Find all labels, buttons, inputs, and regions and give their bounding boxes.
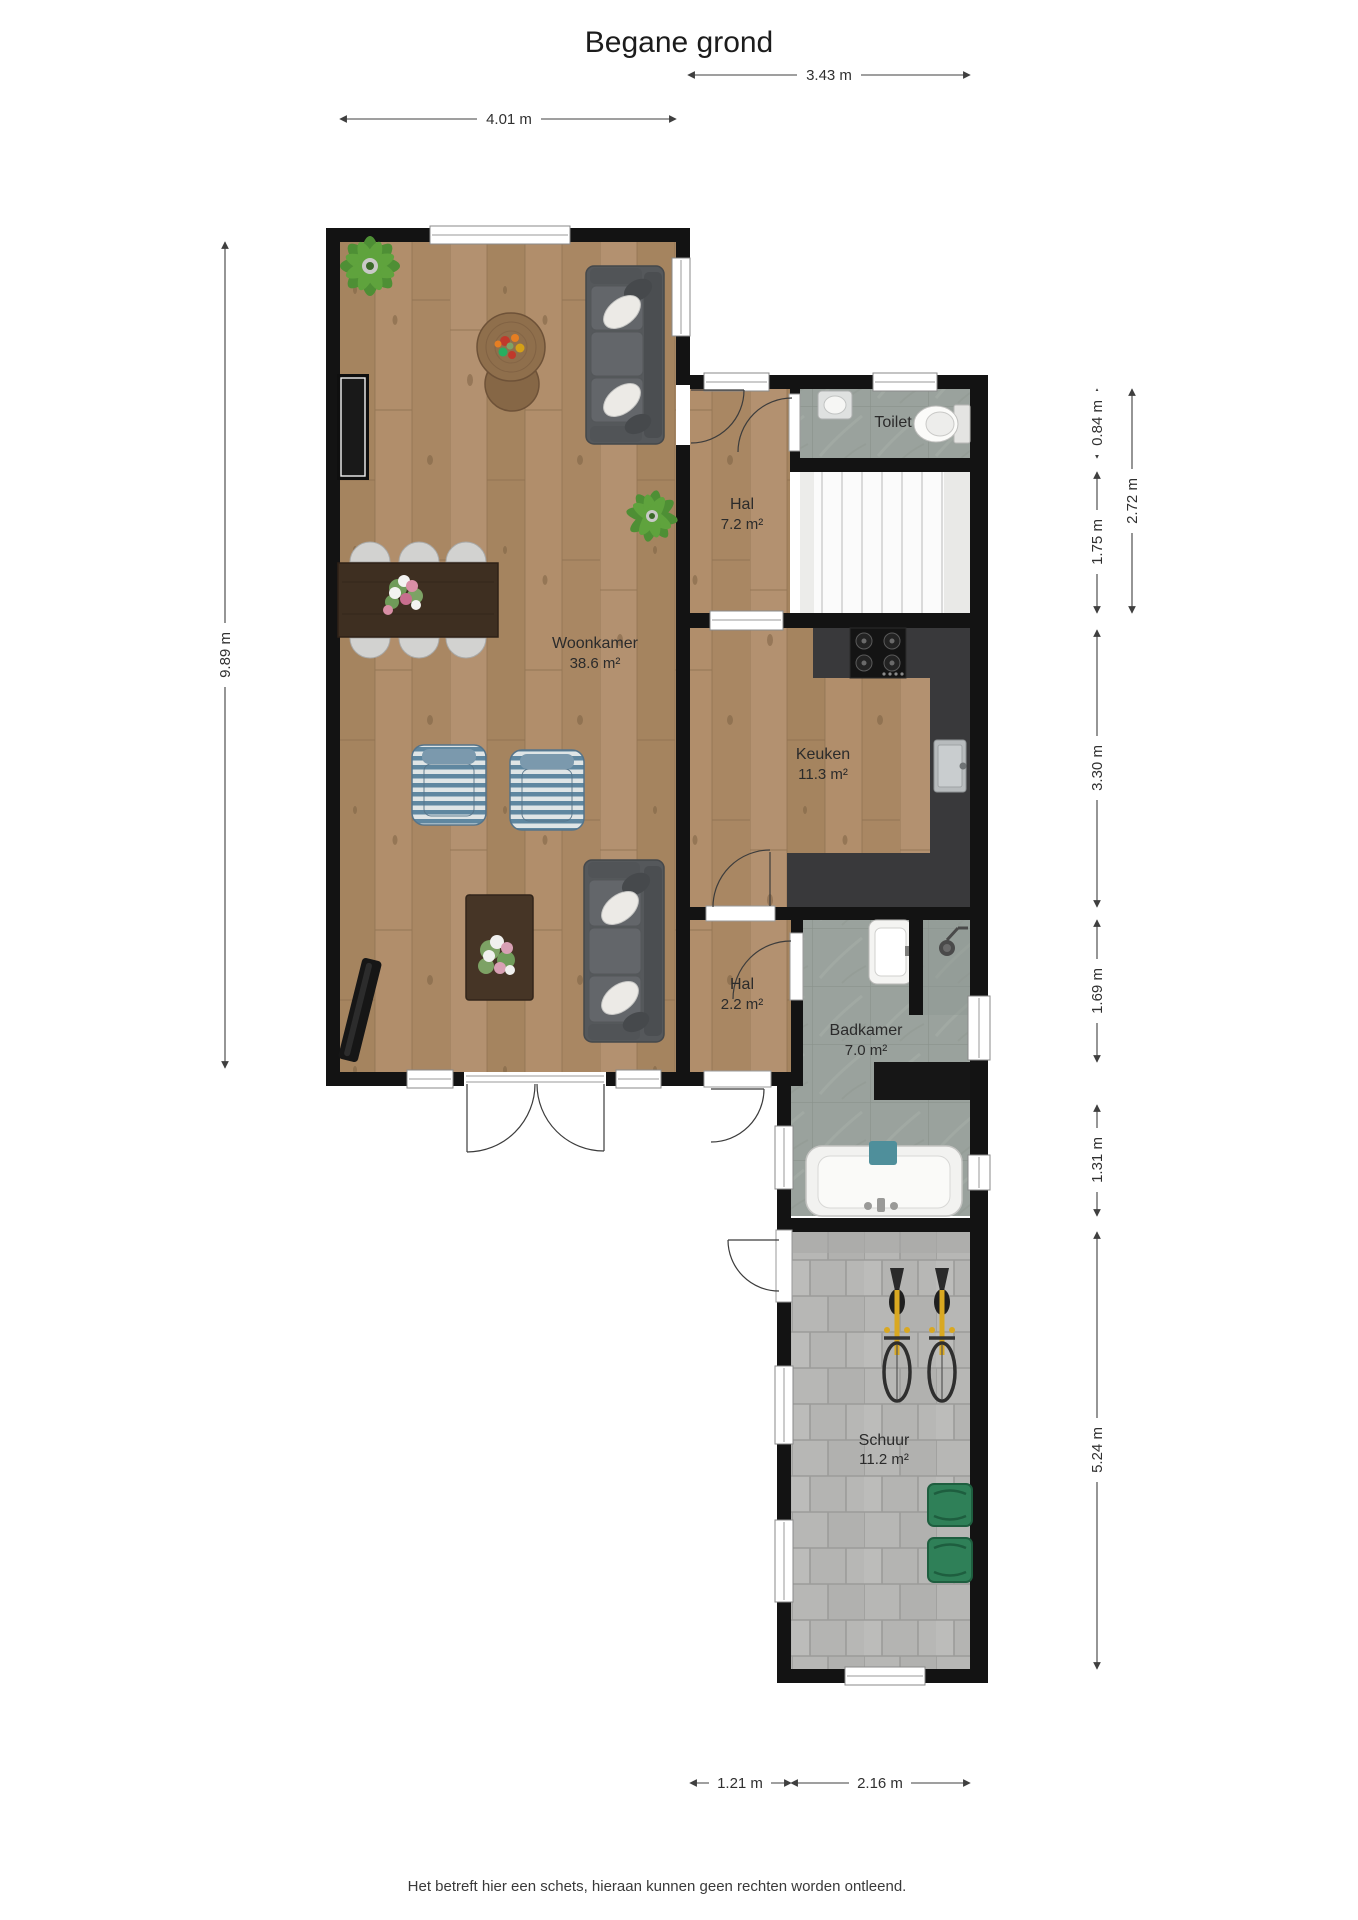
window-badkamer-left [775, 1126, 793, 1189]
dim-hal-breedte: 1.21 m [690, 1774, 791, 1792]
bathtub [806, 1141, 962, 1216]
page-title: Begane grond [585, 26, 774, 59]
label-schuur-area: 11.2 m² [859, 1451, 909, 1468]
dim-woonkamer-breedte: 4.01 m [340, 110, 676, 128]
window-schuur-left-2 [775, 1520, 793, 1602]
label-hal-boven: Hal [730, 496, 754, 513]
window-woonkamer-top [430, 226, 570, 244]
dim-woonkamer-diepte: 9.89 m [216, 242, 234, 1068]
dim-badkamer-diepte: 1.69 m [1088, 920, 1106, 1062]
kitchen-counter-bottom [787, 853, 970, 907]
window-bad-right [968, 1155, 990, 1190]
armchair-right [510, 750, 584, 830]
window-badkamer-right [968, 996, 990, 1060]
label-badkamer-area: 7.0 m² [845, 1042, 888, 1059]
window-woonkamer-bottom-right [616, 1070, 661, 1088]
green-crate [928, 1538, 972, 1582]
stove [850, 628, 906, 678]
label-toilet: Toilet [874, 414, 912, 431]
round-coffee-table [477, 313, 545, 411]
label-schuur: Schuur [859, 1432, 910, 1449]
window-hal-top [704, 373, 769, 391]
staircase [800, 472, 970, 613]
door-hal-buiten [704, 1071, 771, 1142]
tv-cabinet [337, 374, 369, 480]
dim-schuur-breedte: 2.16 m [791, 1774, 970, 1792]
dim-bad-diepte: 1.31 m [1088, 1105, 1106, 1216]
svg-text:5.24 m: 5.24 m [1089, 1427, 1106, 1473]
door-woonkamer-dubbel [464, 1072, 606, 1152]
svg-text:3.30 m: 3.30 m [1089, 745, 1106, 791]
window-toilet-top [873, 373, 937, 391]
label-keuken-area: 11.3 m² [798, 766, 848, 783]
plant-top-left [340, 236, 400, 296]
label-woonkamer-area: 38.6 m² [570, 655, 621, 672]
svg-text:0.84 m: 0.84 m [1089, 400, 1106, 446]
window-schuur-left-1 [775, 1366, 793, 1444]
bath-towel [869, 1141, 897, 1165]
washbasin [869, 920, 912, 984]
kitchen-sink [934, 740, 967, 792]
svg-text:1.21 m: 1.21 m [717, 1775, 763, 1792]
green-crate [928, 1484, 972, 1526]
dim-hal-toilet-diepte: 2.72 m [1123, 389, 1141, 613]
svg-text:2.72 m: 2.72 m [1124, 478, 1141, 524]
dim-keuken-diepte: 3.30 m [1088, 630, 1106, 907]
svg-text:9.89 m: 9.89 m [217, 632, 234, 678]
window-schuur-bottom [845, 1667, 925, 1685]
svg-text:4.01 m: 4.01 m [486, 111, 532, 128]
toilet-bowl [914, 405, 970, 443]
disclaimer-text: Het betreft hier een schets, hieraan kun… [408, 1878, 907, 1895]
window-woonkamer-bottom-left [407, 1070, 453, 1088]
label-woonkamer: Woonkamer [552, 635, 639, 652]
label-badkamer: Badkamer [830, 1022, 904, 1039]
svg-text:3.43 m: 3.43 m [806, 67, 852, 84]
label-hal-beneden-area: 2.2 m² [721, 996, 764, 1013]
wall-toilet-bottom [790, 458, 988, 472]
dim-aanbouw-breedte: 3.43 m [688, 66, 970, 84]
bathroom-vanity [874, 1062, 970, 1100]
shower-partition-wall [909, 920, 923, 1015]
dim-toilet-diepte: 0.84 m [1088, 389, 1106, 458]
window-woonkamer-right [672, 258, 690, 336]
sofa-top-right [586, 266, 664, 444]
window-hal-keuken [710, 611, 783, 630]
wall-woonkamer-left [326, 228, 340, 1086]
svg-text:1.75 m: 1.75 m [1089, 519, 1106, 565]
svg-text:2.16 m: 2.16 m [857, 1775, 903, 1792]
dim-schuur-diepte: 5.24 m [1088, 1232, 1106, 1669]
svg-text:1.31 m: 1.31 m [1089, 1137, 1106, 1183]
coffee-table-bottom [466, 895, 533, 1000]
door-schuur-buiten [728, 1230, 792, 1302]
toilet-sink [818, 391, 852, 419]
shower-floor [923, 920, 970, 1015]
wall-schuur-top [777, 1218, 988, 1232]
schuur-floor-edge [791, 1232, 970, 1253]
label-hal-boven-area: 7.2 m² [721, 516, 764, 533]
sofa-bottom-right [584, 860, 664, 1042]
armchair-left [412, 745, 486, 825]
svg-text:1.69 m: 1.69 m [1089, 968, 1106, 1014]
label-hal-beneden: Hal [730, 976, 754, 993]
dining-set [338, 542, 498, 658]
dim-trap-diepte: 1.75 m [1088, 472, 1106, 613]
floorplan-canvas: Woonkamer 38.6 m² Hal 7.2 m² Toilet Keuk… [0, 0, 1358, 1920]
wall-woonkamer-right [676, 228, 690, 1086]
label-keuken: Keuken [796, 746, 850, 763]
